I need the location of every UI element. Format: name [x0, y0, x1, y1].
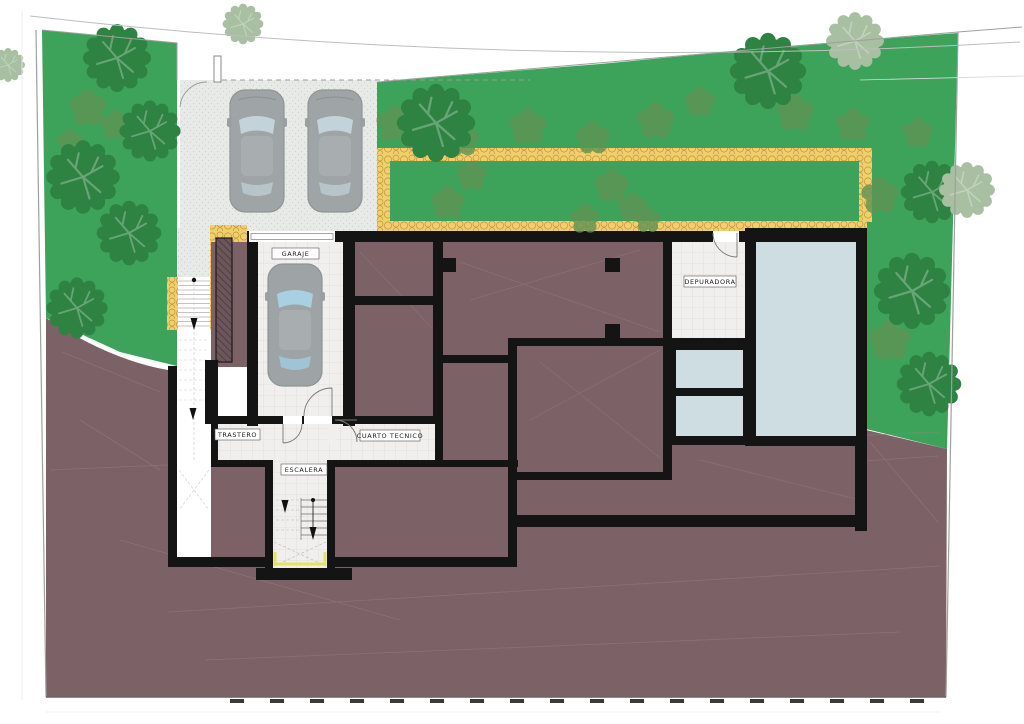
stair-landing-surface [178, 228, 210, 277]
trastero-label: TRASTERO [217, 431, 257, 439]
pale-tree-icon [0, 48, 25, 82]
garaje-label: GARAJE [282, 250, 310, 258]
parked-car [227, 90, 287, 212]
stair-start-dot [192, 278, 196, 282]
escalera-label: ESCALERA [285, 466, 323, 474]
cuarto-tecnico-label: CUARTO TECNICO [357, 432, 423, 440]
label-depuradora: DEPURADORA [684, 276, 736, 287]
garage-side-recess [218, 367, 247, 424]
pillar [605, 324, 620, 338]
retaining-wall-hatched [216, 238, 232, 362]
parked-car [305, 90, 365, 212]
pillar [443, 258, 456, 272]
path-west-strip [377, 148, 390, 231]
garage-door-leaf [251, 234, 333, 240]
garage-car [265, 264, 325, 386]
basement-floor-plan-drawing: GARAJE TRASTERO ESCALERA CUARTO TECNICO … [0, 0, 1024, 724]
pillar [605, 258, 620, 272]
label-garaje: GARAJE [272, 248, 319, 259]
plant-cell-lower [676, 396, 743, 436]
pool-water [756, 241, 856, 436]
site-plan-page: GARAJE TRASTERO ESCALERA CUARTO TECNICO … [0, 0, 1024, 724]
gate-post [214, 56, 221, 82]
plant-cell-upper [676, 350, 743, 388]
depuradora-label: DEPURADORA [684, 278, 735, 286]
label-escalera: ESCALERA [281, 464, 327, 475]
label-cuarto-tecnico: CUARTO TECNICO [357, 430, 423, 441]
pale-tree-icon [223, 4, 264, 45]
label-trastero: TRASTERO [215, 429, 260, 440]
path-stair-side [167, 277, 178, 330]
